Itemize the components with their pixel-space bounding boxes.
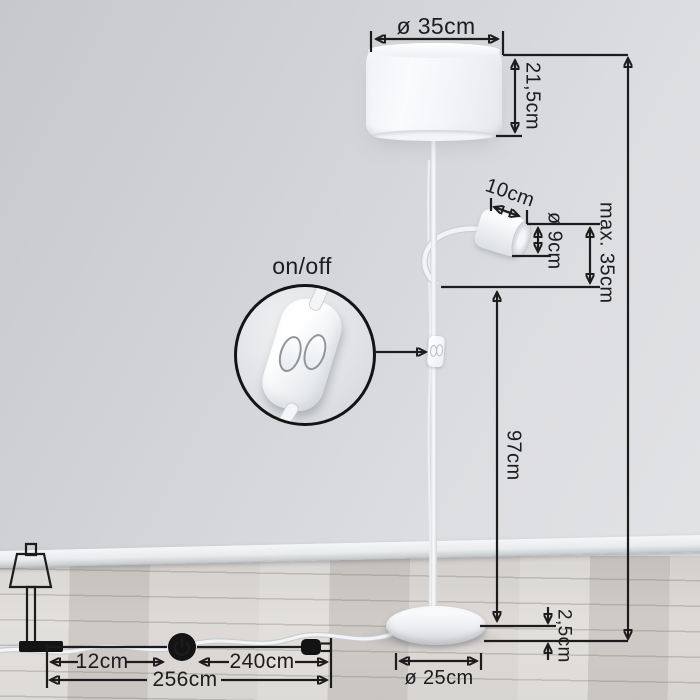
reading-light-max-height-label: max. 35cm <box>593 198 619 308</box>
total-max-height-label <box>631 300 657 426</box>
base-thickness-label: 2,5cm <box>551 604 576 668</box>
table-lamp-icon <box>10 544 63 652</box>
plug-icon <box>301 639 331 655</box>
dimension-linework <box>0 0 700 700</box>
base-diameter-label: ø 25cm <box>397 665 481 691</box>
on-off-label: on/off <box>240 252 364 280</box>
cable-lamp-to-switch-label: 12cm <box>76 649 128 675</box>
product-dimension-diagram: ø 35cm 21,5cm 10cm ø 9cm max. 35cm 97cm … <box>0 0 700 700</box>
cable-total-length-label: 256cm <box>146 667 224 693</box>
stem-height-label: 97cm <box>500 414 526 496</box>
shade-diameter-label: ø 35cm <box>368 12 504 40</box>
cable-switch-to-plug-label: 240cm <box>226 649 298 675</box>
shade-height-label: 21,5cm <box>519 54 545 138</box>
reading-light-diameter-label: ø 9cm <box>541 203 567 279</box>
power-icon <box>168 633 196 661</box>
